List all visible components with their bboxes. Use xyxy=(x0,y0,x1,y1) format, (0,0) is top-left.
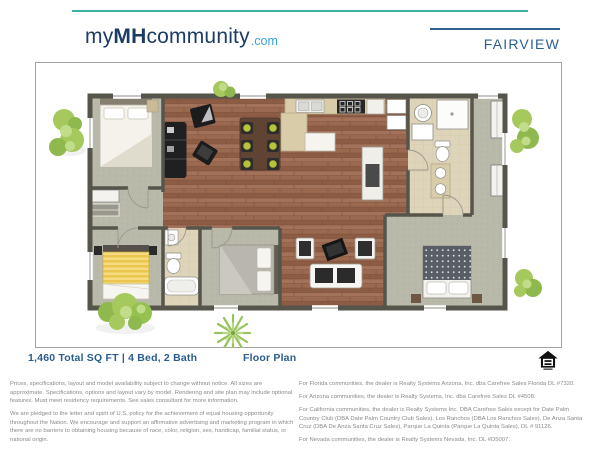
bathtub xyxy=(165,277,199,295)
bush-right-top xyxy=(510,109,539,153)
disclaimer-paragraph: Prices, specifications, layout and model… xyxy=(10,380,294,406)
site-logo: my MH community .com xyxy=(85,26,278,47)
dining-set xyxy=(240,118,280,170)
disclaimer-paragraph: For Florida communities, the dealer is R… xyxy=(299,380,591,389)
disclaimer-paragraph: For California communities, the dealer i… xyxy=(299,406,591,432)
model-name: FAIRVIEW xyxy=(484,36,560,52)
equal-housing-opportunity-icon xyxy=(538,350,558,371)
disclaimer-paragraph: We are pledged to the letter and spirit … xyxy=(10,410,294,444)
tv-console xyxy=(362,147,383,200)
bush-top xyxy=(213,81,236,98)
top-accent-line xyxy=(72,10,528,12)
toilet-2 xyxy=(435,141,450,162)
floor-plan-image xyxy=(35,62,562,348)
disclaimer-paragraph: For Arizona communities, the dealer is R… xyxy=(299,393,591,402)
logo-community: community xyxy=(146,26,249,47)
bed-1 xyxy=(100,98,158,167)
bush-right-bottom xyxy=(514,269,542,297)
bush-left xyxy=(49,109,86,156)
kitchen-counter xyxy=(285,99,385,115)
fridge xyxy=(367,100,384,115)
palm-plant xyxy=(215,315,250,348)
dryer xyxy=(412,124,433,140)
disclaimer-paragraph: For Nevada communities, the dealer is Re… xyxy=(299,436,591,445)
stove xyxy=(337,100,365,114)
sofa-dark xyxy=(164,122,187,178)
disclaimer-right-column: For Florida communities, the dealer is R… xyxy=(299,380,591,449)
double-vanity xyxy=(431,164,450,198)
logo-mh: MH xyxy=(113,26,146,47)
logo-my: my xyxy=(85,26,113,47)
model-name-rule xyxy=(430,28,560,30)
logo-dotcom: .com xyxy=(251,35,278,48)
disclaimer-left-column: Prices, specifications, layout and model… xyxy=(10,380,294,449)
floor-plan-label: Floor Plan xyxy=(243,352,296,364)
shower xyxy=(437,100,468,129)
toilet-1 xyxy=(166,253,181,274)
bed-3 xyxy=(220,245,279,294)
specs-text: 1,460 Total SQ FT | 4 Bed, 2 Bath xyxy=(28,352,197,364)
bed-2 xyxy=(94,245,157,299)
